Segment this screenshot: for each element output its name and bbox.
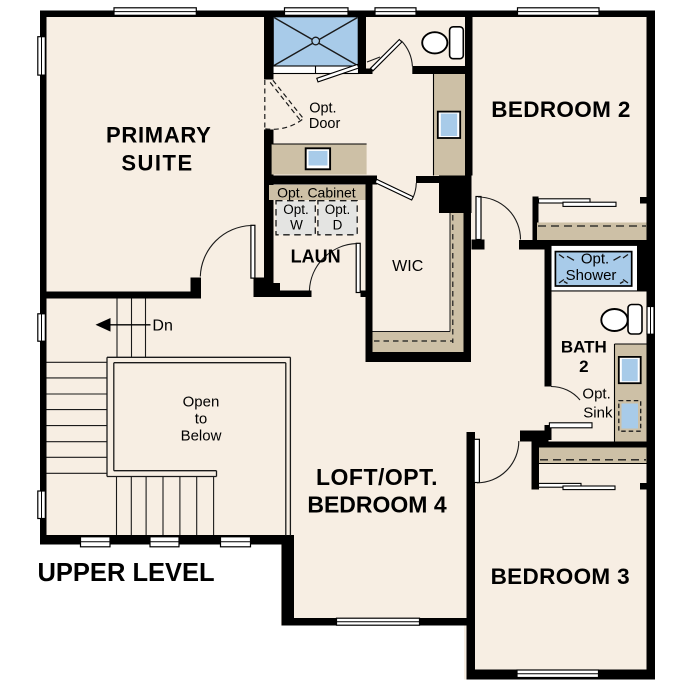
svg-text:WIC: WIC: [392, 258, 423, 275]
svg-text:Below: Below: [181, 428, 222, 445]
svg-text:Opt.: Opt.: [283, 202, 309, 217]
svg-text:D: D: [333, 218, 343, 233]
svg-text:Opt.: Opt.: [309, 101, 336, 117]
svg-text:BATH: BATH: [561, 338, 607, 357]
svg-text:Opt. Cabinet: Opt. Cabinet: [277, 185, 356, 201]
svg-text:Door: Door: [309, 116, 341, 132]
svg-text:2: 2: [579, 357, 588, 376]
svg-text:Open: Open: [183, 394, 220, 411]
svg-text:Opt.: Opt.: [582, 386, 610, 403]
svg-text:LAUN: LAUN: [291, 247, 341, 267]
svg-text:Opt.: Opt.: [325, 202, 351, 217]
svg-text:SUITE: SUITE: [121, 151, 193, 176]
svg-text:PRIMARY: PRIMARY: [106, 123, 212, 148]
svg-text:Opt.: Opt.: [581, 251, 609, 268]
svg-text:BEDROOM 2: BEDROOM 2: [491, 97, 630, 122]
svg-text:W: W: [290, 218, 303, 233]
svg-text:LOFT/OPT.: LOFT/OPT.: [316, 464, 438, 490]
svg-text:UPPER LEVEL: UPPER LEVEL: [38, 559, 215, 587]
svg-text:BEDROOM 3: BEDROOM 3: [491, 564, 630, 589]
svg-text:Dn: Dn: [152, 318, 172, 335]
svg-text:Sink: Sink: [583, 405, 613, 422]
svg-text:to: to: [195, 411, 208, 428]
svg-text:Shower: Shower: [566, 267, 617, 284]
svg-text:BEDROOM 4: BEDROOM 4: [307, 492, 447, 518]
